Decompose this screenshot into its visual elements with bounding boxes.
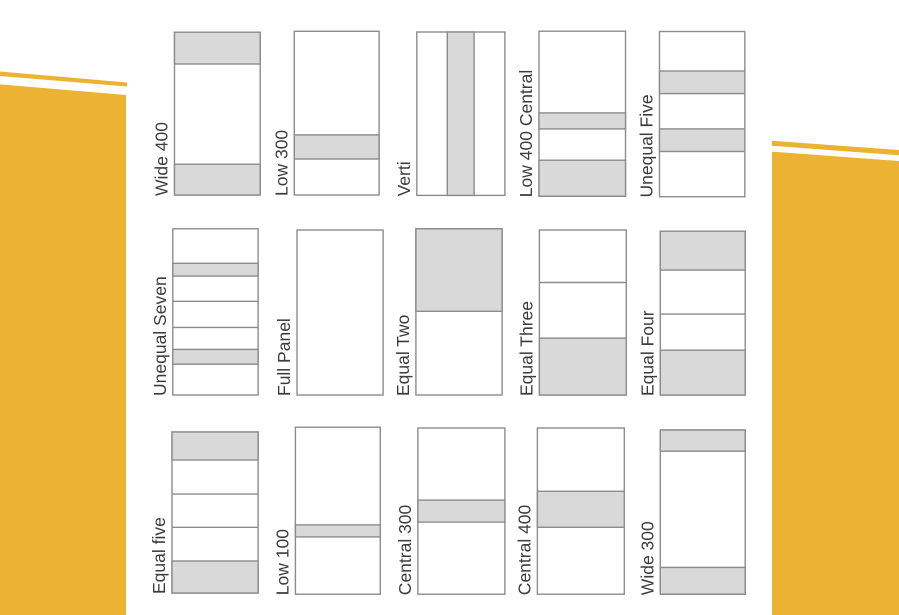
svg-text:Low 100: Low 100 [272, 529, 292, 595]
svg-text:Unequal Seven: Unequal Seven [150, 276, 170, 396]
svg-text:Unequal Five: Unequal Five [637, 94, 657, 197]
svg-text:Equal Three: Equal Three [516, 301, 536, 396]
svg-text:Central 300: Central 300 [395, 504, 415, 595]
svg-text:Wide 400: Wide 400 [152, 122, 172, 196]
svg-text:Full Panel: Full Panel [274, 318, 294, 396]
svg-text:Verti: Verti [394, 161, 414, 196]
svg-text:Equal five: Equal five [149, 517, 169, 594]
svg-text:Low 300: Low 300 [271, 130, 291, 196]
svg-text:Wide 300: Wide 300 [637, 521, 657, 595]
svg-text:Central 400: Central 400 [514, 504, 534, 595]
svg-text:Equal Two: Equal Two [393, 315, 413, 396]
svg-text:Equal Four: Equal Four [637, 310, 657, 396]
svg-text:Low 400 Central: Low 400 Central [516, 70, 536, 197]
